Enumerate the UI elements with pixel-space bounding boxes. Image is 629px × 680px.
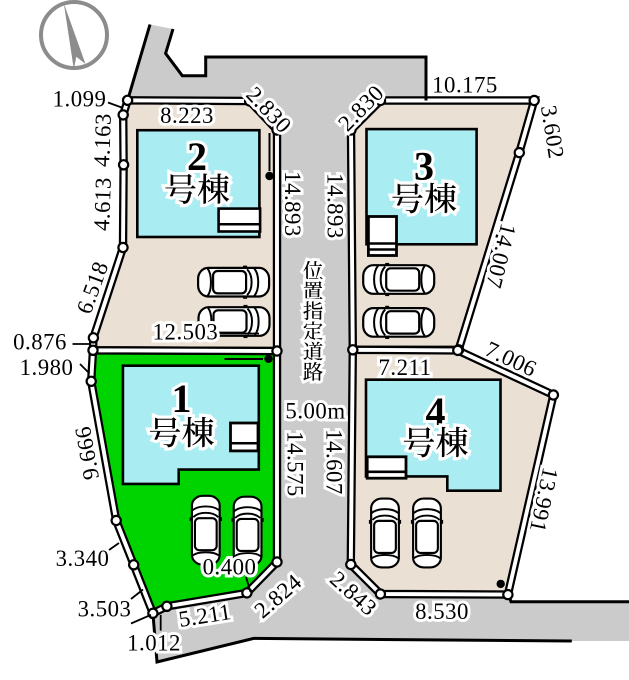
svg-text:4.163: 4.163 xyxy=(89,113,116,168)
svg-text:10.175: 10.175 xyxy=(432,73,498,98)
svg-text:12.503: 12.503 xyxy=(153,320,219,345)
svg-text:8.530: 8.530 xyxy=(415,599,469,624)
svg-text:8.223: 8.223 xyxy=(160,103,214,128)
svg-text:0.400: 0.400 xyxy=(203,555,257,580)
svg-text:3.503: 3.503 xyxy=(78,597,132,622)
svg-text:0.876: 0.876 xyxy=(13,330,67,355)
svg-text:5.00m: 5.00m xyxy=(285,399,345,424)
svg-text:14.893: 14.893 xyxy=(280,171,305,237)
svg-text:1.099: 1.099 xyxy=(53,87,107,112)
svg-text:7.211: 7.211 xyxy=(379,355,432,380)
svg-text:14.607: 14.607 xyxy=(322,429,347,495)
svg-text:14.893: 14.893 xyxy=(323,173,348,239)
svg-text:3.340: 3.340 xyxy=(56,546,110,571)
svg-text:1.980: 1.980 xyxy=(20,355,74,380)
svg-text:4.613: 4.613 xyxy=(89,177,116,232)
svg-text:1.012: 1.012 xyxy=(127,631,181,656)
svg-text:14.575: 14.575 xyxy=(283,431,308,497)
